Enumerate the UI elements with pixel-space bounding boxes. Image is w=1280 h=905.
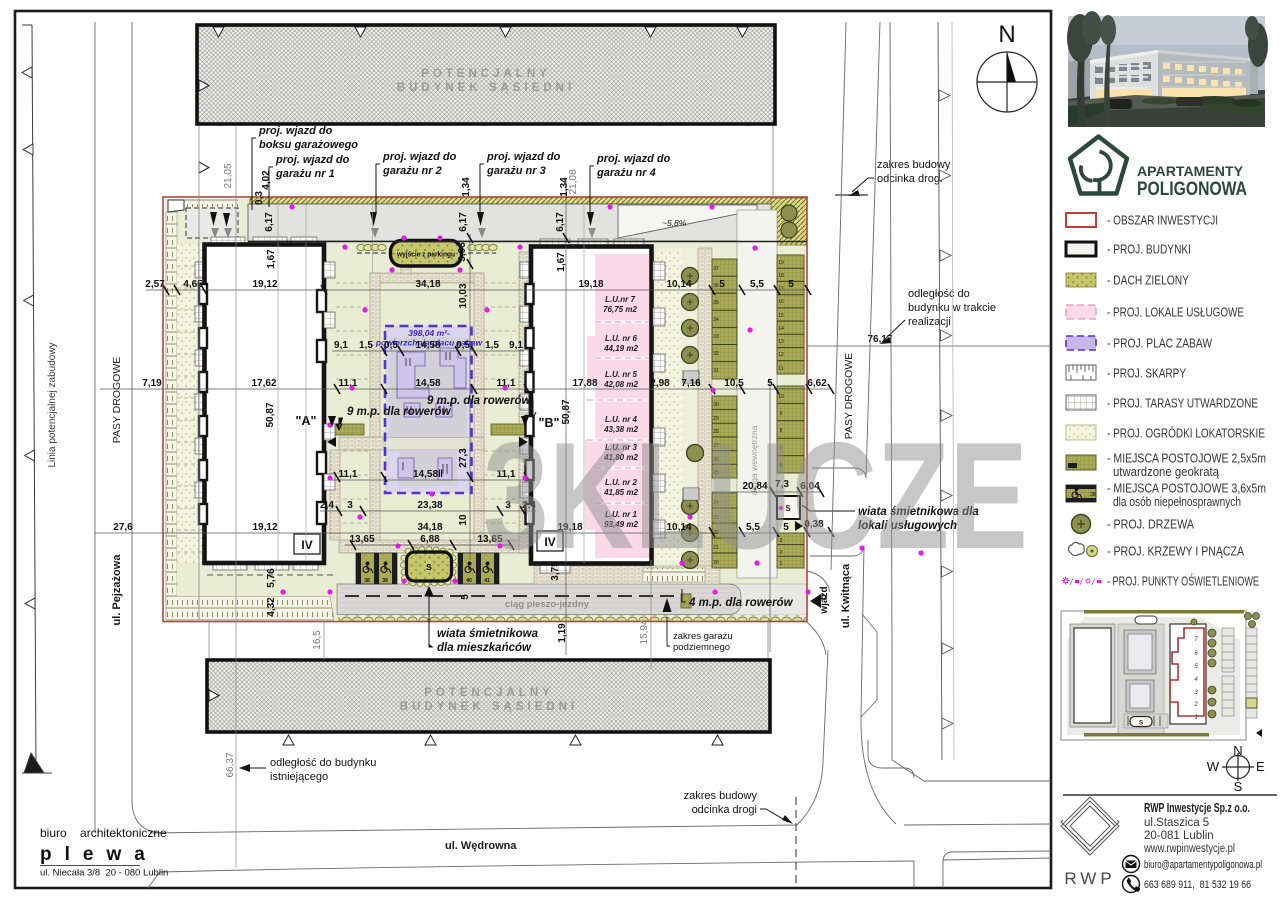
svg-text:2: 2 (1193, 702, 1198, 708)
svg-text:1,19: 1,19 (557, 623, 568, 643)
svg-text:40: 40 (466, 578, 472, 584)
svg-text:zakres budowy: zakres budowy (684, 790, 758, 802)
svg-text:34,18: 34,18 (415, 279, 440, 290)
svg-text:W: W (1207, 759, 1220, 774)
svg-text:POTENCJALNY: POTENCJALNY (421, 68, 551, 80)
svg-text:- PROJ. LOKALE USŁUGOWE: - PROJ. LOKALE USŁUGOWE (1107, 306, 1244, 320)
svg-text:42,08 m2: 42,08 m2 (603, 380, 638, 389)
svg-text:wiata śmietnikowa: wiata śmietnikowa (437, 628, 539, 640)
svg-text:9,1: 9,1 (509, 340, 523, 351)
svg-text:4,65: 4,65 (183, 279, 203, 290)
svg-text:- OBSZAR INWESTYCJI: - OBSZAR INWESTYCJI (1107, 214, 1218, 228)
svg-text:BUDYNEK SĄSIEDNI: BUDYNEK SĄSIEDNI (400, 701, 578, 713)
svg-text:11,1: 11,1 (339, 469, 358, 480)
svg-text:14,58: 14,58 (415, 340, 440, 351)
svg-text:boksu garażowego: boksu garażowego (259, 139, 358, 151)
svg-text:9 m.p. dla rowerów: 9 m.p. dla rowerów (427, 395, 532, 407)
svg-text:garażu nr 2: garażu nr 2 (382, 165, 442, 177)
svg-text:6,88: 6,88 (420, 534, 440, 545)
svg-text:3,96: 3,96 (457, 242, 468, 262)
svg-text:biuro architektoniczne: biuro architektoniczne (40, 826, 167, 840)
svg-text:- MIEJSCA POSTOJOWE 3,6x5m: - MIEJSCA POSTOJOWE 3,6x5m (1107, 482, 1266, 496)
svg-text:S: S (426, 562, 432, 572)
svg-text:33: 33 (713, 334, 719, 340)
svg-text:RWP: RWP (1064, 869, 1115, 888)
svg-text:S: S (1234, 779, 1243, 794)
svg-text:7,19: 7,19 (142, 378, 162, 389)
svg-text:utwardzone geokratą: utwardzone geokratą (1113, 465, 1219, 479)
svg-text:21,05: 21,05 (223, 163, 234, 188)
svg-text:plewa: plewa (40, 844, 158, 865)
svg-text:zakres budowy: zakres budowy (877, 159, 951, 171)
svg-text:17: 17 (778, 286, 784, 292)
svg-text:66,37: 66,37 (225, 752, 236, 777)
svg-text:30: 30 (713, 402, 719, 408)
svg-text:N: N (998, 21, 1015, 48)
svg-text:- PROJ. TARASY UTWARDZONE: - PROJ. TARASY UTWARDZONE (1107, 397, 1258, 411)
svg-text:- PROJ. PUNKTY OŚWIETLENIOWE: - PROJ. PUNKTY OŚWIETLENIOWE (1107, 574, 1259, 589)
svg-text:dla mieszkańców: dla mieszkańców (437, 642, 532, 654)
svg-text:- PROJ. KRZEWY I PNĄCZA: - PROJ. KRZEWY I PNĄCZA (1107, 545, 1245, 559)
svg-text:14,58: 14,58 (415, 378, 440, 389)
svg-text:odcinka drogi: odcinka drogi (692, 804, 757, 816)
svg-text:1,5: 1,5 (485, 340, 499, 351)
svg-text:10: 10 (458, 514, 469, 526)
svg-text:50,87: 50,87 (265, 402, 276, 427)
svg-text:wjazd: wjazd (819, 586, 830, 614)
svg-text:5: 5 (719, 279, 725, 290)
svg-text:proj. wjazd do: proj. wjazd do (275, 154, 350, 166)
svg-text:www.rwpinwestycje.pl: www.rwpinwestycje.pl (1143, 843, 1235, 855)
svg-text:biuro@apartamentypoligonowa.pl: biuro@apartamentypoligonowa.pl (1144, 859, 1262, 871)
svg-text:10,14: 10,14 (666, 279, 691, 290)
svg-text:S: S (1139, 720, 1144, 727)
svg-text:7,16: 7,16 (681, 378, 701, 389)
svg-text:- PROJ. SKARPY: - PROJ. SKARPY (1107, 367, 1187, 381)
svg-text:4,32: 4,32 (266, 597, 277, 617)
svg-text:garażu nr 4: garażu nr 4 (596, 167, 656, 179)
svg-text:dla osób niepełnosprawnych: dla osób niepełnosprawnych (1113, 495, 1241, 509)
svg-text:RWP Inwestycje Sp.z o.o.: RWP Inwestycje Sp.z o.o. (1144, 801, 1250, 815)
svg-text:27,6: 27,6 (113, 522, 133, 533)
svg-text:- DACH ZIELONY: - DACH ZIELONY (1107, 274, 1190, 288)
svg-text:21,08: 21,08 (568, 169, 579, 194)
svg-text:garażu nr 3: garażu nr 3 (486, 165, 546, 177)
svg-text:19,12: 19,12 (252, 279, 277, 290)
svg-text:E: E (1256, 759, 1265, 774)
svg-text:podziemnego: podziemnego (673, 642, 730, 653)
svg-text:13,65: 13,65 (349, 534, 374, 545)
svg-text:proj. wjazd do: proj. wjazd do (596, 153, 671, 165)
svg-text:4 m.p. dla rowerów: 4 m.p. dla rowerów (688, 597, 794, 609)
svg-text:2,98: 2,98 (650, 378, 670, 389)
svg-text:76,75 m2: 76,75 m2 (603, 305, 637, 314)
svg-text:Linia potencjalnej zabudowy: Linia potencjalnej zabudowy (47, 342, 58, 467)
svg-text:5,76: 5,76 (266, 568, 277, 588)
svg-text:ul. Wędrowna: ul. Wędrowna (445, 840, 517, 852)
svg-text:31: 31 (713, 368, 719, 374)
svg-text:0,5: 0,5 (456, 340, 470, 351)
svg-text:6,17: 6,17 (458, 212, 469, 232)
svg-text:1,67: 1,67 (266, 249, 277, 269)
svg-text:ciąg pieszo-jezdny: ciąg pieszo-jezdny (505, 599, 590, 610)
svg-text:16,5: 16,5 (312, 630, 323, 650)
svg-text:3: 3 (347, 500, 353, 511)
svg-text:ul. Niecała 3/8 20 - 080 Lubl: ul. Niecała 3/8 20 - 080 Lublin (40, 868, 168, 879)
svg-text:44,19 m2: 44,19 m2 (603, 344, 638, 353)
svg-text:663 689 911, 81 532 19 66: 663 689 911, 81 532 19 66 (1144, 879, 1251, 891)
svg-text:5: 5 (788, 279, 794, 290)
svg-text:6,62: 6,62 (807, 378, 827, 389)
svg-text:POLIGONOWA: POLIGONOWA (1137, 178, 1247, 200)
svg-text:garażu nr 1: garażu nr 1 (275, 168, 335, 180)
svg-text:17,88: 17,88 (572, 378, 597, 389)
svg-text:2,4: 2,4 (320, 500, 334, 511)
svg-text:23,38: 23,38 (417, 500, 442, 511)
svg-text:1,67: 1,67 (556, 252, 567, 272)
svg-text:POTENCJALNY: POTENCJALNY (424, 687, 554, 699)
svg-text:odcinka drogi: odcinka drogi (877, 173, 942, 185)
svg-text:20-081 Lublin: 20-081 Lublin (1144, 830, 1214, 842)
svg-text:36: 36 (713, 283, 719, 289)
svg-text:9,1: 9,1 (334, 340, 348, 351)
svg-text:1,34: 1,34 (461, 177, 472, 197)
svg-text:38: 38 (364, 578, 370, 584)
svg-text:L.U. nr 5: L.U. nr 5 (605, 370, 638, 379)
svg-text:11: 11 (778, 366, 783, 372)
svg-text:odległość do: odległość do (908, 288, 970, 300)
svg-text:34: 34 (713, 317, 719, 323)
svg-text:4,02: 4,02 (261, 170, 272, 190)
svg-text:14,58‖: 14,58‖ (413, 469, 443, 480)
svg-text:- MIEJSCA POSTOJOWE 2,5x5m: - MIEJSCA POSTOJOWE 2,5x5m (1107, 452, 1266, 466)
svg-text:BUDYNEK SĄSIEDNI: BUDYNEK SĄSIEDNI (397, 82, 575, 94)
svg-text:13: 13 (778, 339, 784, 345)
svg-text:- PROJ. PLAC ZABAW: - PROJ. PLAC ZABAW (1107, 337, 1212, 351)
svg-text:realizacji: realizacji (908, 316, 951, 328)
svg-text:- PROJ. OGRÓDKI LOKATORSKIE: - PROJ. OGRÓDKI LOKATORSKIE (1107, 426, 1265, 441)
svg-text:398,04 m²-: 398,04 m²- (408, 328, 450, 338)
svg-text:5: 5 (460, 594, 471, 600)
svg-text:35: 35 (713, 300, 719, 306)
svg-text:37: 37 (713, 266, 719, 272)
svg-text:34,18: 34,18 (417, 522, 442, 533)
svg-text:proj. wjazd do: proj. wjazd do (382, 151, 457, 163)
svg-text:0,5: 0,5 (384, 340, 398, 351)
svg-text:9 m.p. dla rowerów: 9 m.p. dla rowerów (347, 406, 452, 418)
svg-text:17,62: 17,62 (251, 378, 276, 389)
svg-text:L.U.nr 7: L.U.nr 7 (605, 295, 635, 304)
svg-text:14: 14 (778, 326, 784, 332)
svg-text:wyjście z parkingu: wyjście z parkingu (396, 250, 455, 259)
svg-text:1: 1 (1194, 715, 1197, 721)
svg-text:proj. wjazd do: proj. wjazd do (486, 151, 561, 163)
svg-text:11,1: 11,1 (339, 378, 358, 389)
svg-text:- PROJ. BUDYNKI: - PROJ. BUDYNKI (1107, 243, 1191, 257)
svg-text:L.U. nr 6: L.U. nr 6 (605, 334, 638, 343)
svg-text:odległość do budynku: odległość do budynku (270, 757, 376, 769)
svg-text:27,3: 27,3 (458, 448, 469, 468)
svg-text:0,3: 0,3 (254, 191, 265, 205)
svg-text:- PROJ. DRZEWA: - PROJ. DRZEWA (1107, 518, 1195, 532)
svg-text:5: 5 (767, 378, 773, 389)
svg-text:3KLUCZE: 3KLUCZE (483, 411, 1028, 581)
svg-text:~5,8%: ~5,8% (662, 218, 687, 228)
svg-text:6,17: 6,17 (555, 212, 566, 232)
svg-text:15,94: 15,94 (639, 619, 650, 644)
svg-text:15: 15 (778, 313, 784, 319)
svg-text:19,12: 19,12 (252, 522, 277, 533)
svg-text:zakres garażu: zakres garażu (673, 631, 733, 642)
svg-text:18: 18 (778, 273, 784, 279)
svg-text:10: 10 (778, 394, 784, 400)
svg-text:istniejącego: istniejącego (270, 771, 328, 783)
svg-text:19,18: 19,18 (578, 279, 603, 290)
svg-text:ul.Staszica 5: ul.Staszica 5 (1144, 817, 1209, 829)
svg-text:39: 39 (382, 578, 388, 584)
svg-text:16: 16 (778, 299, 784, 305)
svg-text:38: 38 (1090, 492, 1096, 498)
svg-text:6,17: 6,17 (264, 212, 275, 232)
svg-text:1,5: 1,5 (359, 340, 373, 351)
svg-text:32: 32 (713, 351, 719, 357)
svg-text:proj. wjazd do: proj. wjazd do (258, 125, 333, 137)
svg-text:19: 19 (778, 260, 784, 266)
svg-text:10,03: 10,03 (458, 283, 469, 308)
svg-text:12: 12 (778, 352, 784, 358)
svg-text:2,57: 2,57 (145, 279, 165, 290)
svg-text:IV: IV (301, 538, 312, 552)
svg-text:budynku w trakcie: budynku w trakcie (908, 302, 996, 314)
svg-text:APARTAMENTY: APARTAMENTY (1137, 163, 1244, 179)
svg-text:PASY DROGOWE: PASY DROGOWE (111, 357, 123, 444)
svg-text:ul. Pejzażowa: ul. Pejzażowa (111, 554, 123, 626)
svg-text:5,5: 5,5 (750, 279, 764, 290)
